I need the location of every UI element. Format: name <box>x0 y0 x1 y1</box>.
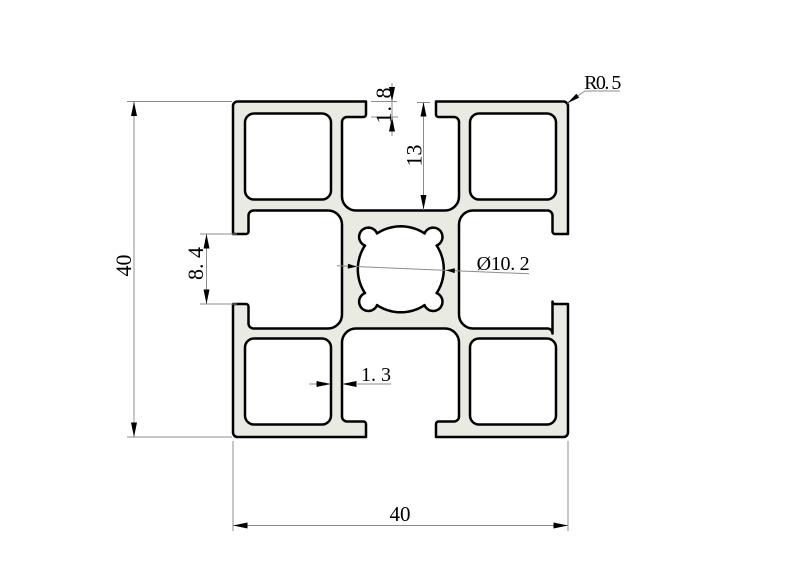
svg-text:R0. 5: R0. 5 <box>584 72 621 94</box>
svg-text:1. 3: 1. 3 <box>361 364 391 386</box>
svg-text:8. 4: 8. 4 <box>183 247 208 280</box>
svg-text:40: 40 <box>390 502 411 526</box>
svg-text:Ø10. 2: Ø10. 2 <box>477 253 530 275</box>
svg-text:40: 40 <box>111 255 136 277</box>
svg-text:1. 8: 1. 8 <box>371 87 396 124</box>
svg-text:13: 13 <box>402 145 427 167</box>
